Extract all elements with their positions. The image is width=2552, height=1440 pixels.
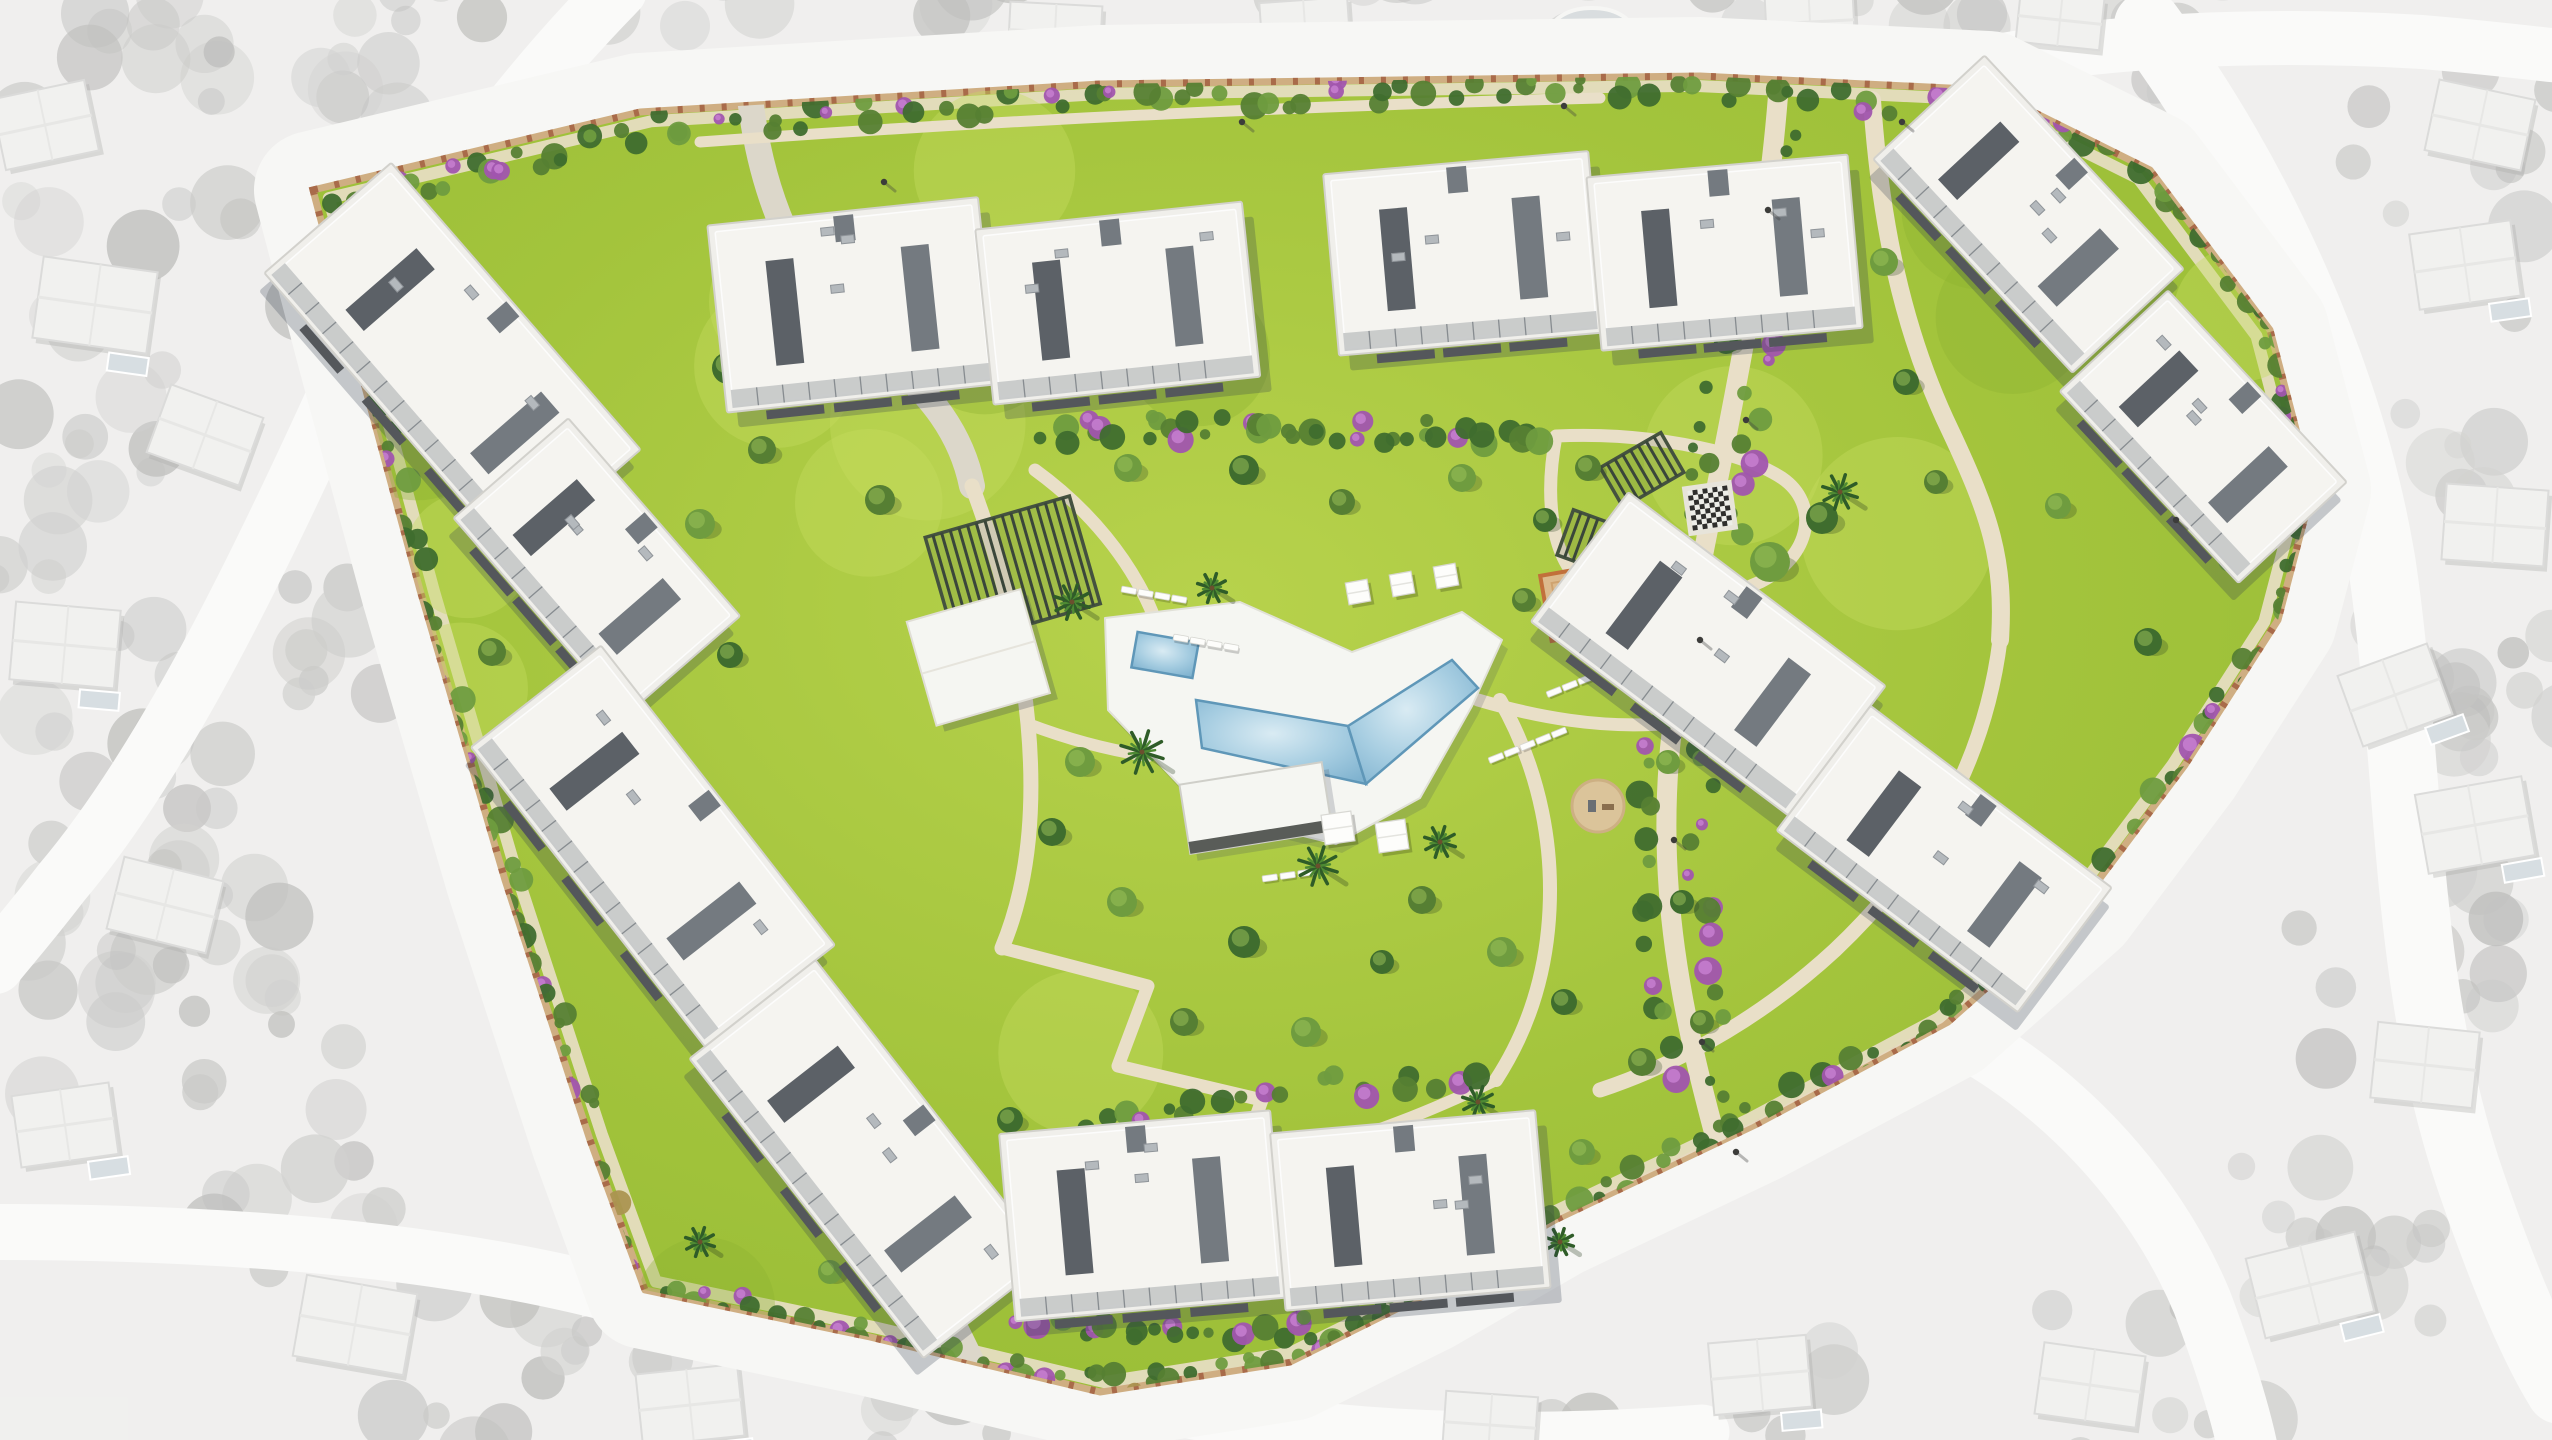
site-plan-render — [0, 0, 2552, 1440]
cabana — [1321, 811, 1358, 849]
cabana — [1345, 579, 1374, 609]
cabana — [1389, 571, 1418, 601]
cabana — [1433, 563, 1462, 593]
playground — [1572, 780, 1624, 832]
giant-chess-board — [1682, 480, 1738, 536]
cabana — [1375, 819, 1412, 857]
aerial-masterplan-svg — [0, 0, 2552, 1440]
